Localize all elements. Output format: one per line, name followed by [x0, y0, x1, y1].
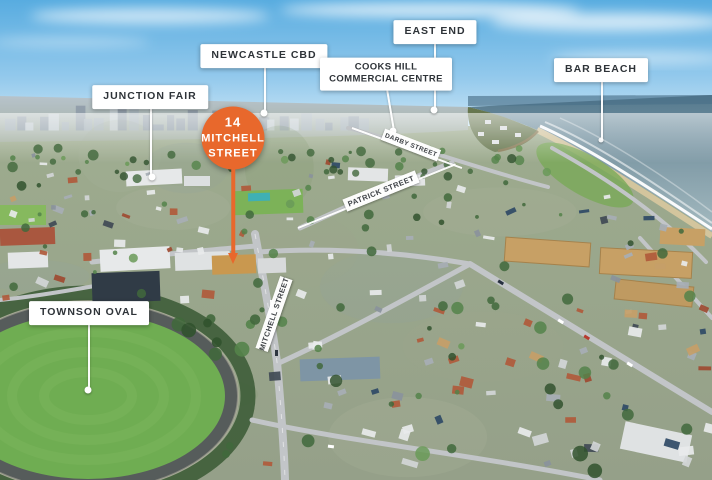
dot-bar-beach	[599, 138, 604, 143]
property-marker-street2: STREET	[208, 146, 257, 161]
marker-pointer-line	[231, 167, 235, 254]
property-marker-number: 14	[225, 115, 241, 132]
dot-newcastle-cbd	[261, 110, 268, 117]
dot-townson-oval	[85, 387, 92, 394]
leader-newcastle-cbd	[264, 66, 266, 113]
leader-bar-beach	[601, 81, 603, 140]
marker-pointer-arrow	[228, 253, 238, 264]
dot-east-end	[431, 107, 438, 114]
label-bar-beach: BAR BEACH	[554, 58, 648, 82]
label-cooks-hill-commercial-centre: COOKS HILL COMMERCIAL CENTRE	[320, 58, 452, 91]
property-marker-street: MITCHELL	[201, 132, 265, 147]
label-townson-oval: TOWNSON OVAL	[29, 301, 149, 325]
leader-townson-oval	[88, 323, 90, 390]
label-east-end: EAST END	[393, 20, 476, 44]
label-junction-fair: JUNCTION FAIR	[92, 85, 208, 109]
property-marker: 14 MITCHELL STREET	[202, 107, 265, 170]
label-newcastle-cbd: NEWCASTLE CBD	[200, 44, 327, 68]
aerial-photo: JUNCTION FAIR NEWCASTLE CBD EAST END COO…	[0, 0, 712, 480]
dot-junction-fair	[149, 174, 156, 181]
leader-junction-fair	[150, 107, 152, 177]
pool	[248, 193, 270, 202]
